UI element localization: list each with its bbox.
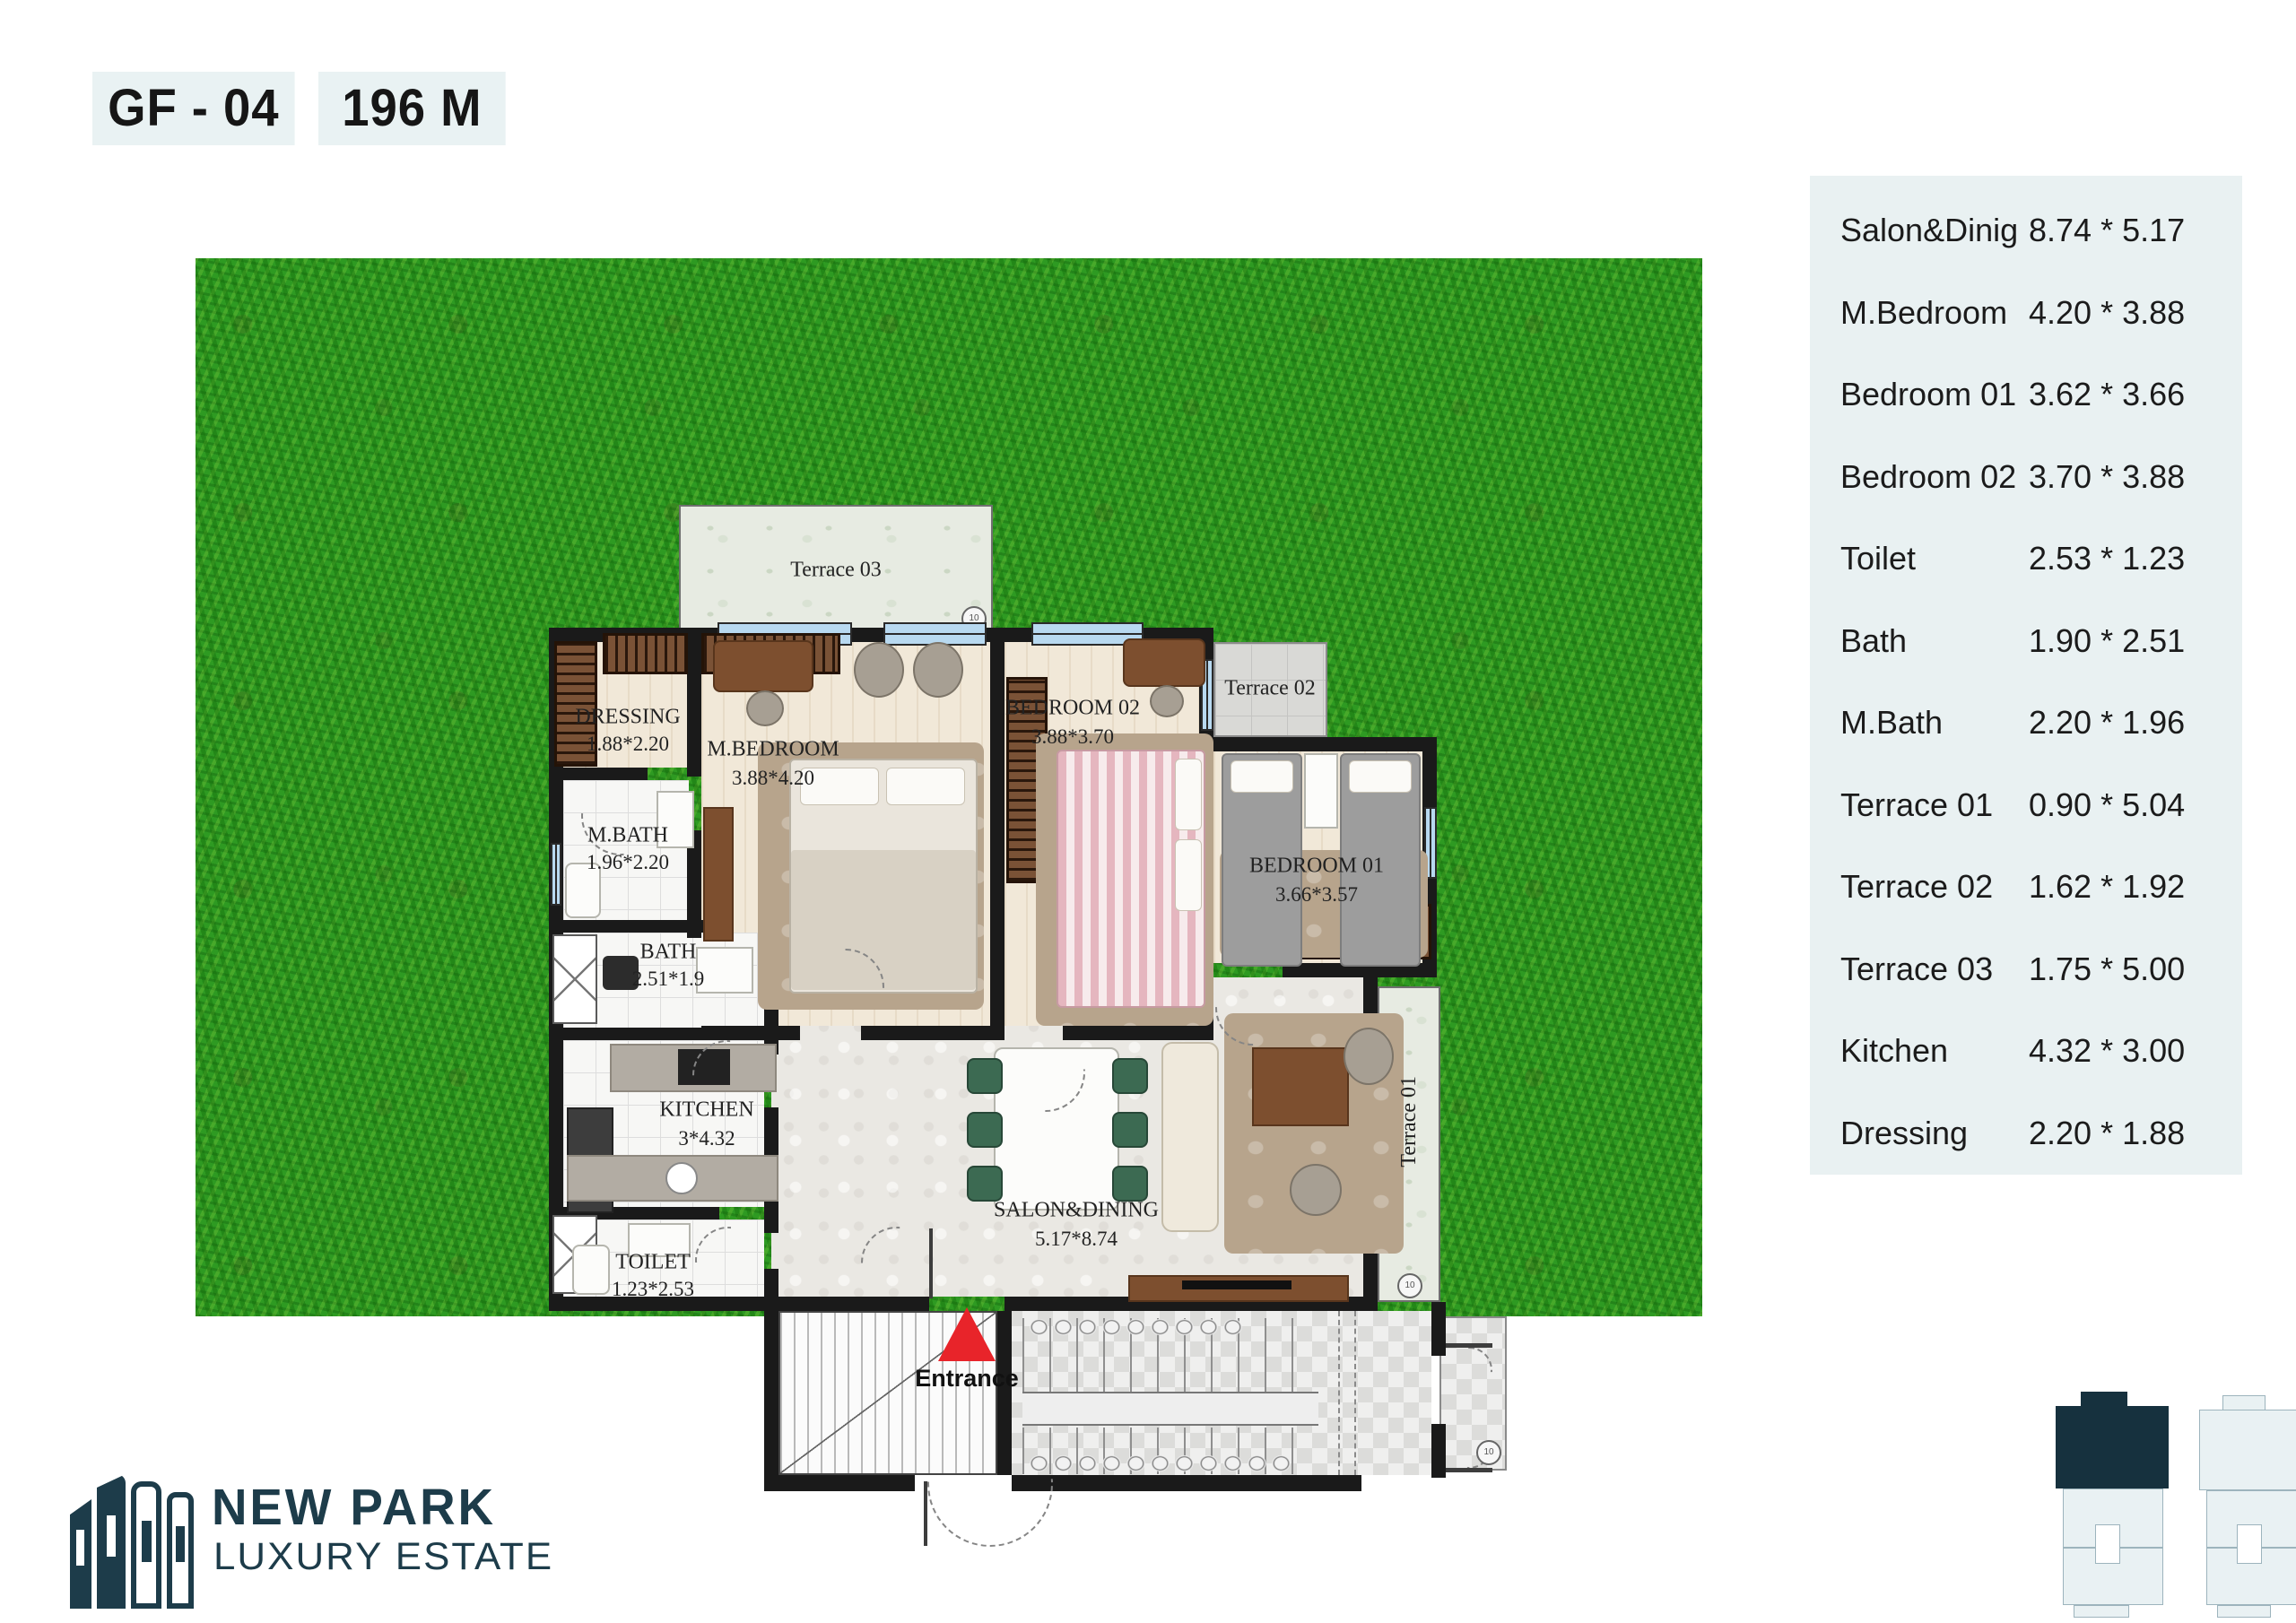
terrace-01-label: Terrace 01: [1397, 1076, 1422, 1167]
keyplan-section: [2199, 1410, 2296, 1490]
wall: [1431, 1424, 1446, 1478]
chair: [1150, 685, 1184, 717]
room-dim: 4.32 * 3.00: [2029, 1023, 2185, 1079]
wall: [549, 920, 710, 933]
grid-marker-icon: 10: [1476, 1440, 1501, 1465]
room-name: Toilet: [1840, 531, 1916, 586]
toilet-label: TOILET: [615, 1251, 691, 1275]
table-row: M.Bath2.20 * 1.96: [1810, 695, 2242, 751]
blanket: [791, 850, 976, 990]
salon-dim: 5.17*8.74: [1035, 1228, 1118, 1251]
wall: [1063, 1026, 1213, 1040]
door-leaf: [929, 1228, 933, 1298]
pillow: [886, 768, 965, 805]
dining-chair: [1112, 1166, 1148, 1202]
room-dim: 1.62 * 1.92: [2029, 859, 2185, 915]
wall: [997, 1311, 1012, 1475]
toilet-dim: 1.23*2.53: [612, 1278, 694, 1301]
room-dim: 2.20 * 1.96: [2029, 695, 2185, 751]
wall: [764, 1311, 778, 1490]
logo-tagline: LUXURY ESTATE: [213, 1535, 553, 1579]
dining-chair: [967, 1058, 1003, 1094]
room-dim: 3.62 * 3.66: [2029, 367, 2185, 422]
room-dim: 1.75 * 5.00: [2029, 942, 2185, 997]
table-row: Bedroom 013.62 * 3.66: [1810, 367, 2242, 422]
table-row: Toilet2.53 * 1.23: [1810, 531, 2242, 586]
wall: [990, 628, 1004, 1026]
keyplan-core: [2237, 1524, 2262, 1564]
shaft: [552, 934, 597, 1024]
bedroom02-dim: 3.88*3.70: [1031, 725, 1114, 749]
room-dim: 0.90 * 5.04: [2029, 777, 2185, 833]
wall: [549, 768, 648, 780]
wall: [549, 1297, 929, 1311]
room-name: Terrace 01: [1840, 777, 1993, 833]
stairs-landing: [1022, 1392, 1318, 1426]
room-name: Terrace 03: [1840, 942, 1993, 997]
wardrobe: [603, 633, 688, 674]
bedroom02-label: BEDROOM 02: [1005, 697, 1140, 721]
dining-chair: [1112, 1058, 1148, 1094]
room-name: Bath: [1840, 613, 1907, 669]
coffee-table: [1252, 1047, 1349, 1126]
mbath-dim: 1.96*2.20: [587, 851, 669, 874]
dressing-label: DRESSING: [575, 706, 680, 730]
pillow: [1175, 759, 1202, 830]
unit-badge: GF - 04: [92, 72, 295, 145]
floorplan-page: GF - 04 196 M Terrace 03 10: [0, 0, 2296, 1623]
logo-window: [176, 1526, 185, 1562]
bath-dim: 2.51*1.9: [632, 968, 705, 991]
door-leaf: [1446, 1343, 1492, 1348]
room-dim: 2.20 * 1.88: [2029, 1106, 2185, 1161]
table-row: Kitchen4.32 * 3.00: [1810, 1023, 2242, 1079]
room-dim: 3.70 * 3.88: [2029, 449, 2185, 505]
keyplan-section: [2217, 1605, 2271, 1618]
toilet-seat: [572, 1245, 610, 1295]
table-row: Terrace 010.90 * 5.04: [1810, 777, 2242, 833]
logo-name: NEW PARK: [212, 1478, 496, 1537]
window: [551, 843, 561, 906]
entrance-arrow-icon: [938, 1307, 996, 1361]
room-name: Bedroom 01: [1840, 367, 2016, 422]
room-name: Terrace 02: [1840, 859, 1993, 915]
armchair: [854, 642, 904, 698]
room-dim: 4.20 * 3.88: [2029, 285, 2185, 341]
table-row: Dressing2.20 * 1.88: [1810, 1106, 2242, 1161]
salon-label: SALON&DINING: [994, 1199, 1159, 1223]
corridor-dashed-line: [1354, 1311, 1356, 1475]
pillow: [1175, 839, 1202, 911]
chair: [746, 690, 784, 726]
desk: [1123, 638, 1205, 687]
area-badge: 196 M: [318, 72, 506, 145]
wall: [1431, 1302, 1446, 1356]
room-dim: 8.74 * 5.17: [2029, 203, 2185, 258]
table-row: Bedroom 023.70 * 3.88: [1810, 449, 2242, 505]
stair-number-circles: [1027, 1316, 1242, 1338]
table-row: Salon&Dinig8.74 * 5.17: [1810, 203, 2242, 258]
kitchen-dim: 3*4.32: [678, 1127, 735, 1150]
grid-marker-icon: 10: [1397, 1273, 1422, 1298]
armchair: [913, 642, 963, 698]
wall: [764, 1269, 778, 1311]
room-name: Salon&Dinig: [1840, 203, 2018, 258]
armchair: [1344, 1028, 1394, 1085]
room-dim: 2.53 * 1.23: [2029, 531, 2185, 586]
wall: [1199, 737, 1437, 751]
mbath-label: M.BATH: [587, 824, 668, 848]
armchair: [1290, 1164, 1342, 1216]
door-leaf: [1446, 1468, 1492, 1472]
bath-label: BATH: [640, 941, 697, 965]
wall: [549, 1028, 719, 1040]
room-name: M.Bedroom: [1840, 285, 2007, 341]
stair-number-circles: [1027, 1453, 1292, 1474]
keyplan-section: [2074, 1605, 2129, 1618]
dining-chair: [967, 1112, 1003, 1148]
sink: [696, 947, 753, 994]
sofa: [1161, 1042, 1219, 1232]
room-name: M.Bath: [1840, 695, 1943, 751]
mbedroom-label: M.BEDROOM: [707, 738, 839, 762]
room-name: Kitchen: [1840, 1023, 1948, 1079]
table-row: M.Bedroom4.20 * 3.88: [1810, 285, 2242, 341]
room-name: Bedroom 02: [1840, 449, 2016, 505]
keyplan-core: [2095, 1524, 2120, 1564]
table-row: Terrace 021.62 * 1.92: [1810, 859, 2242, 915]
wall: [1012, 1475, 1361, 1491]
door-leaf: [924, 1481, 927, 1546]
kitchen-label: KITCHEN: [659, 1098, 753, 1123]
tv: [1182, 1280, 1291, 1289]
room-name: Dressing: [1840, 1106, 1968, 1161]
bedroom01-label: BEDROOM 01: [1249, 855, 1384, 879]
pillow: [1349, 760, 1412, 793]
logo-window: [142, 1521, 152, 1562]
desk: [1304, 753, 1338, 829]
desk: [713, 640, 813, 692]
entrance-label: Entrance: [915, 1365, 1019, 1393]
plate: [665, 1162, 698, 1194]
terrace-03-label: Terrace 03: [790, 559, 882, 583]
dining-chair: [967, 1166, 1003, 1202]
mbedroom-dim: 3.88*4.20: [732, 767, 814, 790]
dining-chair: [1112, 1112, 1148, 1148]
dressing-dim: 1.88*2.20: [587, 733, 669, 756]
pillow: [1231, 760, 1293, 793]
wall: [861, 1026, 1004, 1040]
corridor-dashed-line: [1338, 1311, 1340, 1475]
wall: [764, 1475, 915, 1491]
keyplan-section-highlight: [2056, 1406, 2169, 1488]
logo-window: [107, 1515, 116, 1557]
bedroom01-dim: 3.66*3.57: [1275, 883, 1358, 907]
wall: [687, 642, 701, 777]
logo-window: [76, 1530, 84, 1566]
table-row: Terrace 031.75 * 5.00: [1810, 942, 2242, 997]
room-dim: 1.90 * 2.51: [2029, 613, 2185, 669]
table-row: Bath1.90 * 2.51: [1810, 613, 2242, 669]
dresser: [703, 807, 734, 942]
terrace-02-label: Terrace 02: [1224, 677, 1316, 701]
